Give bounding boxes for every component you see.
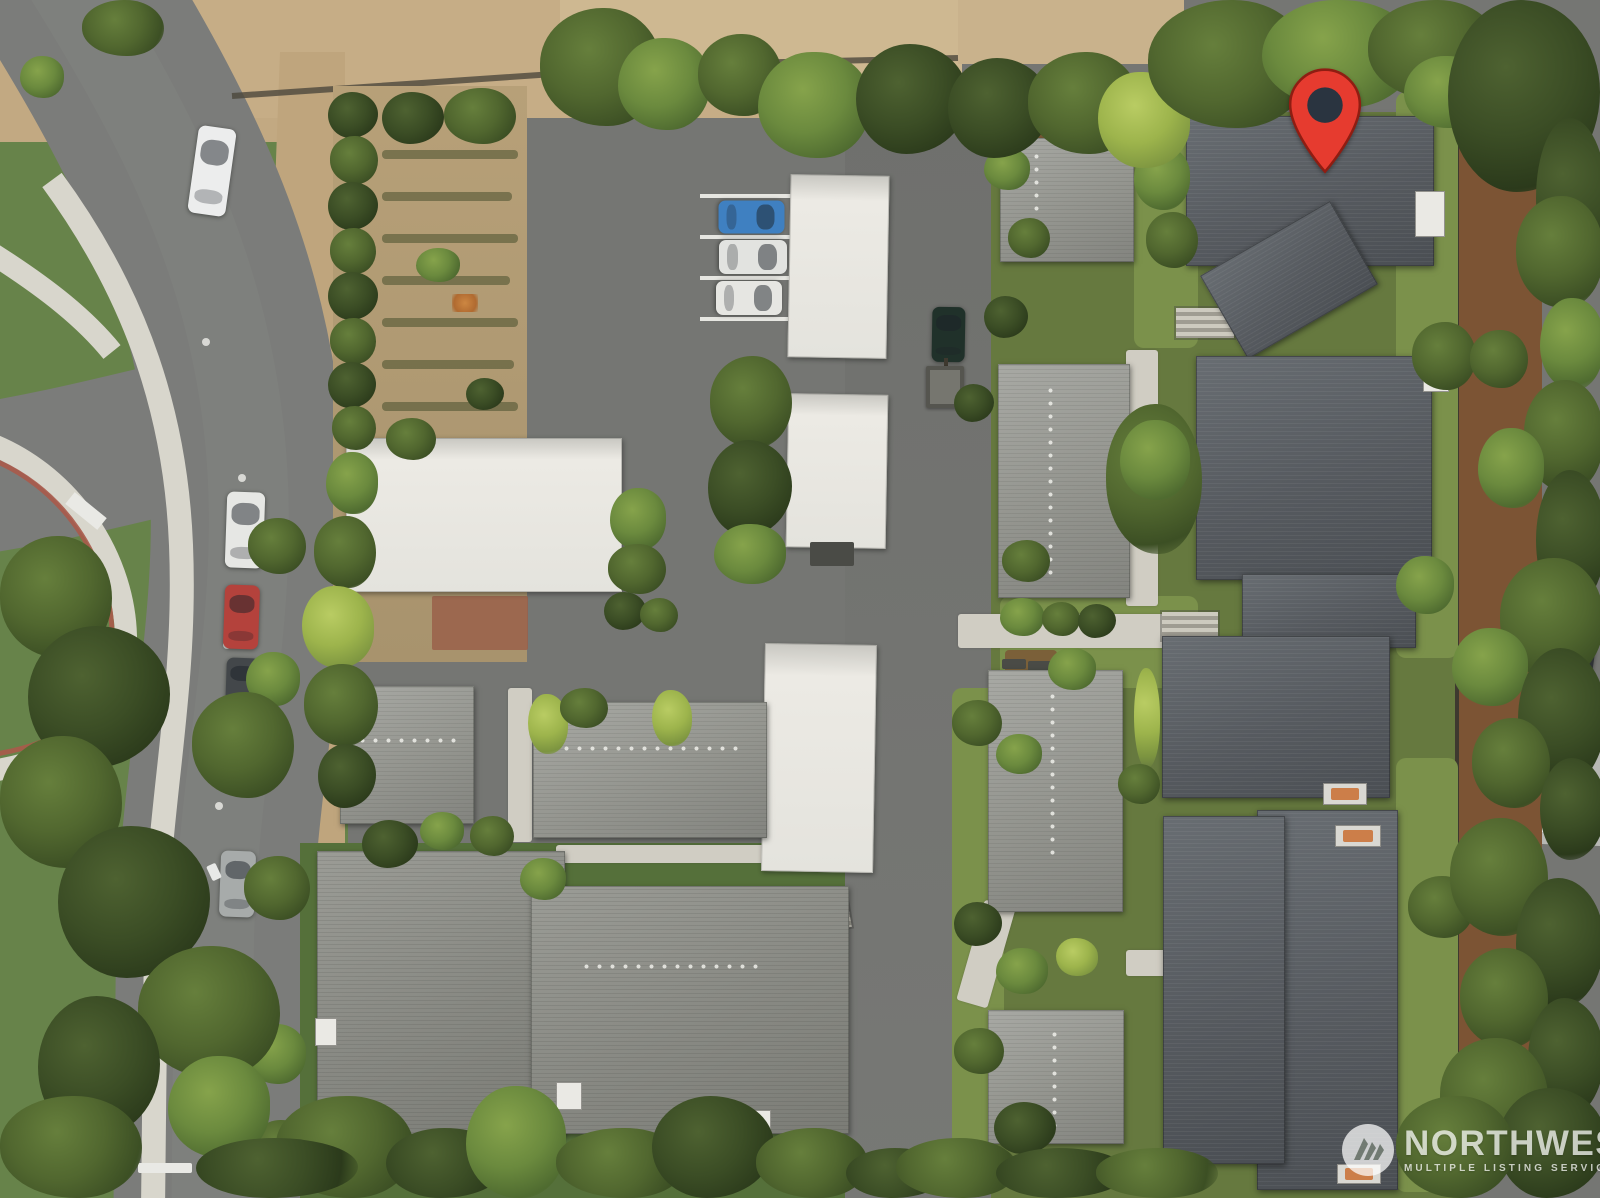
tree-mid xyxy=(244,856,310,920)
tree-yellow xyxy=(652,690,692,746)
carport-middle xyxy=(786,393,889,549)
tree-bright xyxy=(420,812,464,850)
roof-vents xyxy=(1046,690,1060,860)
aerial-photo: NORTHWEST MULTIPLE LISTING SERVICE. xyxy=(0,0,1600,1198)
tree-mid xyxy=(952,700,1002,746)
tree-dark xyxy=(708,440,792,536)
tree-mid xyxy=(1002,540,1050,582)
tree-bright xyxy=(618,38,710,130)
tree-mid xyxy=(1470,330,1528,388)
garden-brick-path xyxy=(432,596,528,650)
tree-bright xyxy=(1120,420,1190,500)
bench xyxy=(1002,659,1026,669)
tree-mid xyxy=(386,418,436,460)
tree-mid xyxy=(560,688,608,728)
tree-mid xyxy=(444,88,516,144)
tree-bright xyxy=(1478,428,1544,508)
yellow-hedge xyxy=(1134,668,1160,768)
tree-mid xyxy=(1472,718,1550,808)
tree-mid xyxy=(304,664,378,746)
tree-mid xyxy=(640,598,678,632)
roof-vents xyxy=(580,960,760,974)
white-car-lot xyxy=(716,281,782,315)
building-roof xyxy=(1196,356,1432,580)
tree-bright xyxy=(1396,556,1454,614)
tree-mid xyxy=(1146,212,1198,268)
tree-bright xyxy=(996,734,1042,774)
tree-dark xyxy=(1540,758,1600,860)
tree-mid xyxy=(1042,602,1080,636)
subject-property-pin xyxy=(1287,67,1363,175)
chimney xyxy=(1323,783,1367,805)
roof-vents xyxy=(560,742,746,756)
roof-vents xyxy=(356,734,460,748)
chimney xyxy=(315,1018,337,1046)
tree-mid xyxy=(314,516,376,588)
tree-bright xyxy=(610,488,666,550)
mls-brand: NORTHWEST xyxy=(1404,1126,1600,1161)
building-roof xyxy=(1162,636,1390,798)
carport-north xyxy=(787,174,889,359)
tree-bright xyxy=(326,452,378,514)
grow xyxy=(382,150,518,159)
tree-bright xyxy=(1452,628,1528,706)
waste-bins xyxy=(810,542,854,566)
mls-subtitle: MULTIPLE LISTING SERVICE. xyxy=(1404,1164,1600,1174)
garden-flowers xyxy=(452,294,478,312)
blue-car xyxy=(719,201,785,234)
tree-yellow xyxy=(302,586,374,668)
red-car xyxy=(223,584,260,649)
tree-mid xyxy=(1412,322,1476,390)
grow xyxy=(382,318,518,327)
grow xyxy=(382,192,512,201)
tree-mid xyxy=(608,544,666,594)
tree-mid xyxy=(710,356,792,448)
chimney xyxy=(1335,825,1381,847)
tree-bright xyxy=(520,858,566,900)
chimney xyxy=(556,1082,582,1110)
tree-bright xyxy=(758,52,870,158)
tree-bright xyxy=(714,524,786,584)
scene-items xyxy=(0,0,1600,1198)
tree-mid xyxy=(248,518,306,574)
tree-bright xyxy=(1048,648,1096,690)
chimney xyxy=(1415,191,1445,237)
mls-watermark-text: NORTHWEST MULTIPLE LISTING SERVICE. xyxy=(1404,1126,1600,1174)
tree-mid xyxy=(82,0,164,56)
white-car-lot xyxy=(719,240,787,274)
mls-watermark: NORTHWEST MULTIPLE LISTING SERVICE. xyxy=(1342,1124,1600,1176)
tree-mid xyxy=(1096,1148,1218,1198)
tree-mid xyxy=(330,136,378,184)
pickup-truck xyxy=(932,307,966,363)
southeast-building-wing xyxy=(1163,816,1285,1164)
tree-mid xyxy=(330,318,376,364)
clubhouse-white-roof xyxy=(346,438,622,592)
tree-mid xyxy=(0,1096,142,1198)
white-van xyxy=(187,125,237,217)
tree-bright xyxy=(466,1086,566,1198)
tree-mid xyxy=(1008,218,1050,258)
tree-bright xyxy=(1000,598,1044,636)
tree-bright xyxy=(20,56,64,98)
grow xyxy=(382,360,514,369)
nwmls-logo-icon xyxy=(1342,1124,1394,1176)
tree-mid xyxy=(330,228,376,274)
parkway-tree xyxy=(192,692,294,798)
tree-mid xyxy=(470,816,514,856)
tree-mid xyxy=(1118,764,1160,804)
grow xyxy=(382,234,518,243)
tree-mid xyxy=(332,406,376,450)
carport-south xyxy=(761,643,877,873)
tree-bright xyxy=(416,248,460,282)
tree-bright xyxy=(996,948,1048,994)
tree-yellow xyxy=(1056,938,1098,976)
tree-bright xyxy=(1540,298,1600,390)
tree-mid xyxy=(954,1028,1004,1074)
tree-mid xyxy=(1516,196,1600,308)
